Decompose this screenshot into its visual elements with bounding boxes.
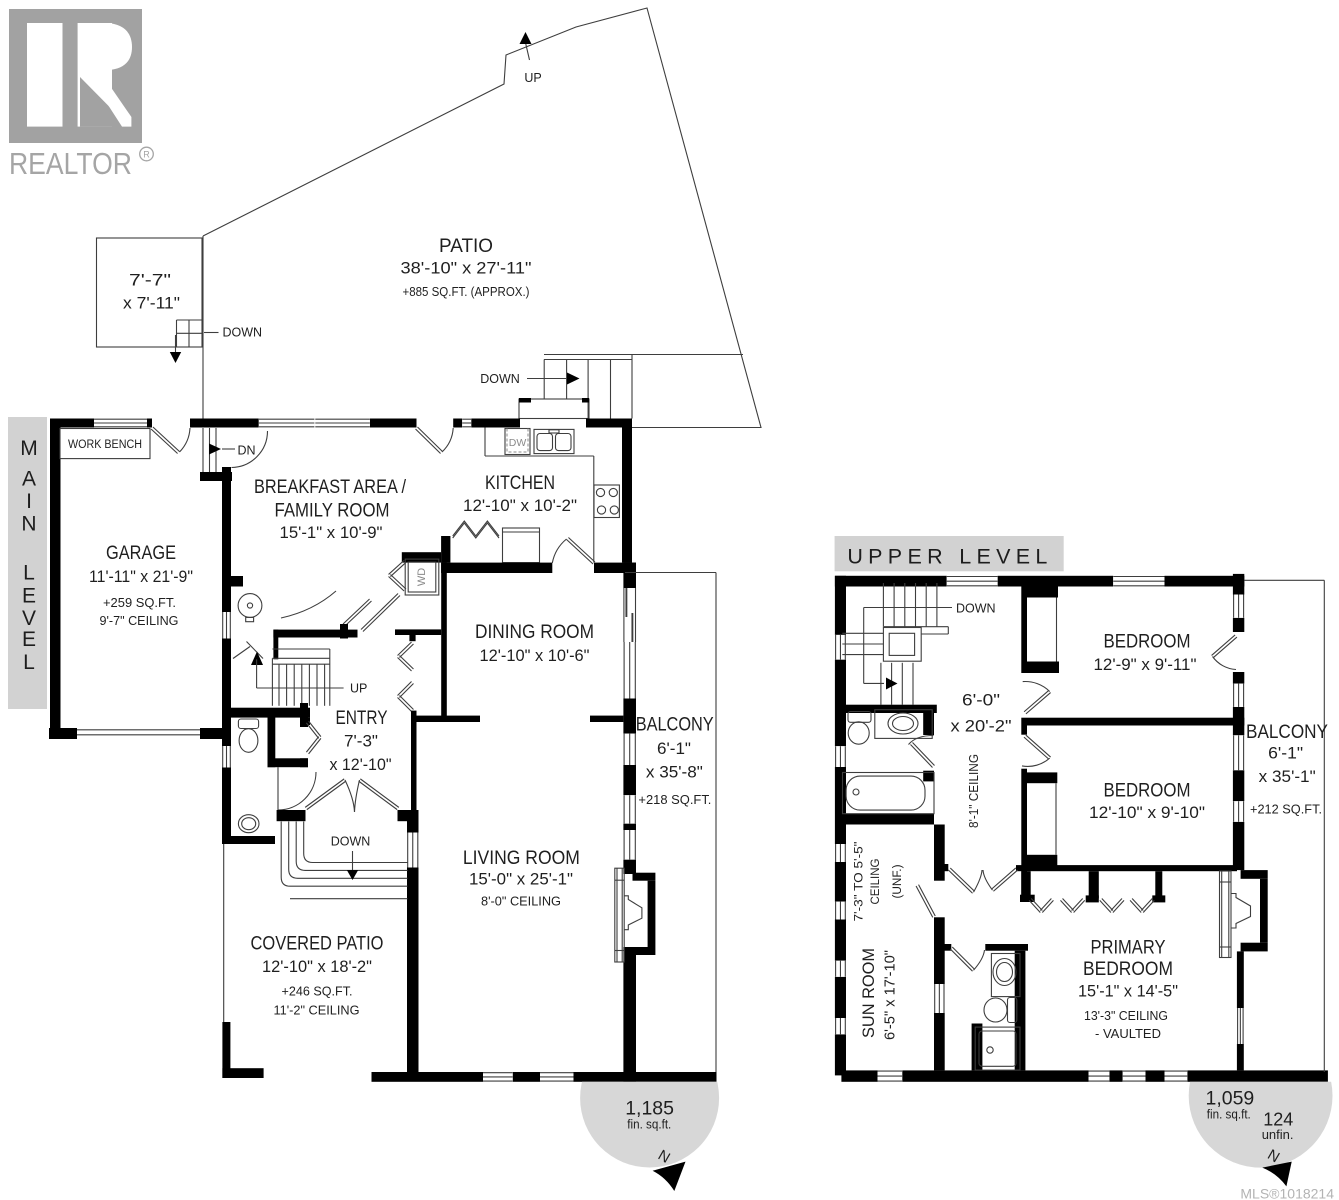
svg-text:SUN ROOM: SUN ROOM bbox=[859, 948, 878, 1038]
svg-text:MLS®1018214: MLS®1018214 bbox=[1240, 1186, 1334, 1200]
svg-text:COVERED PATIO: COVERED PATIO bbox=[251, 934, 384, 955]
svg-text:12'-9" x 9'-11": 12'-9" x 9'-11" bbox=[1094, 656, 1197, 674]
svg-text:15'-1" x 14'-5": 15'-1" x 14'-5" bbox=[1078, 983, 1178, 1001]
svg-text:6'-1": 6'-1" bbox=[657, 740, 691, 758]
svg-text:- VAULTED: - VAULTED bbox=[1095, 1027, 1161, 1041]
svg-text:PATIO: PATIO bbox=[439, 236, 493, 257]
svg-text:L: L bbox=[23, 562, 35, 585]
svg-text:x 35'-1": x 35'-1" bbox=[1259, 768, 1316, 786]
svg-text:7'-7": 7'-7" bbox=[129, 272, 171, 290]
svg-text:(UNF.): (UNF.) bbox=[892, 864, 904, 898]
svg-text:+259 SQ.FT.: +259 SQ.FT. bbox=[103, 596, 176, 610]
svg-text:R: R bbox=[143, 150, 150, 160]
svg-text:CEILING: CEILING bbox=[870, 858, 882, 904]
svg-text:DN: DN bbox=[238, 444, 256, 458]
svg-text:REALTOR: REALTOR bbox=[9, 147, 132, 181]
svg-text:fin. sq.ft.: fin. sq.ft. bbox=[627, 1117, 671, 1132]
svg-text:UP: UP bbox=[350, 682, 367, 696]
svg-text:BEDROOM: BEDROOM bbox=[1104, 781, 1191, 802]
svg-text:A: A bbox=[22, 467, 36, 490]
svg-text:11'-2" CEILING: 11'-2" CEILING bbox=[274, 1004, 360, 1018]
svg-text:E: E bbox=[22, 584, 36, 607]
svg-text:BALCONY: BALCONY bbox=[1246, 722, 1328, 743]
svg-text:12'-10" x 9'-10": 12'-10" x 9'-10" bbox=[1089, 804, 1205, 822]
svg-text:FAMILY ROOM: FAMILY ROOM bbox=[275, 501, 390, 522]
svg-text:DOWN: DOWN bbox=[331, 835, 371, 849]
svg-text:DOWN: DOWN bbox=[956, 602, 996, 616]
svg-text:+218 SQ.FT.: +218 SQ.FT. bbox=[638, 793, 711, 807]
svg-text:N: N bbox=[21, 513, 36, 536]
svg-text:M: M bbox=[20, 437, 38, 460]
svg-text:8'-1" CEILING: 8'-1" CEILING bbox=[966, 754, 981, 828]
svg-text:6'-0": 6'-0" bbox=[962, 692, 1000, 710]
svg-text:BEDROOM: BEDROOM bbox=[1104, 632, 1191, 653]
svg-text:L: L bbox=[23, 651, 35, 674]
svg-text:BALCONY: BALCONY bbox=[636, 715, 714, 736]
svg-text:11'-11" x 21'-9": 11'-11" x 21'-9" bbox=[89, 568, 193, 586]
svg-text:15'-0" x 25'-1": 15'-0" x 25'-1" bbox=[469, 871, 573, 889]
svg-text:x 20'-2": x 20'-2" bbox=[951, 718, 1012, 736]
svg-text:UP: UP bbox=[524, 71, 541, 85]
svg-text:6'-1": 6'-1" bbox=[1268, 745, 1303, 763]
svg-text:PRIMARY: PRIMARY bbox=[1091, 938, 1166, 959]
svg-text:+885 SQ.FT. (APPROX.): +885 SQ.FT. (APPROX.) bbox=[403, 285, 530, 299]
svg-text:E: E bbox=[22, 628, 36, 651]
svg-text:x 35'-8": x 35'-8" bbox=[646, 764, 703, 782]
svg-text:WORK BENCH: WORK BENCH bbox=[68, 439, 142, 451]
svg-text:DOWN: DOWN bbox=[480, 372, 520, 386]
svg-text:15'-1" x 10'-9": 15'-1" x 10'-9" bbox=[280, 524, 383, 542]
svg-text:9'-7" CEILING: 9'-7" CEILING bbox=[100, 614, 179, 628]
svg-text:DOWN: DOWN bbox=[223, 326, 263, 340]
svg-text:DW: DW bbox=[509, 437, 527, 449]
svg-text:7'-3": 7'-3" bbox=[344, 733, 378, 751]
svg-text:ENTRY: ENTRY bbox=[336, 708, 388, 729]
svg-text:x 7'-11": x 7'-11" bbox=[123, 295, 180, 313]
svg-text:unfin.: unfin. bbox=[1262, 1127, 1294, 1142]
svg-text:x 12'-10": x 12'-10" bbox=[330, 756, 392, 774]
svg-text:+212 SQ.FT.: +212 SQ.FT. bbox=[1250, 803, 1322, 817]
svg-text:LIVING ROOM: LIVING ROOM bbox=[463, 848, 580, 869]
svg-text:12'-10" x 10'-6": 12'-10" x 10'-6" bbox=[480, 647, 590, 665]
svg-text:38'-10" x 27'-11": 38'-10" x 27'-11" bbox=[401, 260, 532, 278]
svg-text:BREAKFAST AREA /: BREAKFAST AREA / bbox=[254, 477, 407, 498]
svg-text:WD: WD bbox=[416, 568, 428, 586]
svg-text:V: V bbox=[22, 607, 36, 630]
svg-text:8'-0" CEILING: 8'-0" CEILING bbox=[481, 895, 561, 909]
svg-text:DINING ROOM: DINING ROOM bbox=[475, 622, 594, 643]
svg-text:fin. sq.ft.: fin. sq.ft. bbox=[1207, 1106, 1251, 1121]
svg-text:12'-10" x 10'-2": 12'-10" x 10'-2" bbox=[463, 497, 577, 515]
svg-text:I: I bbox=[26, 490, 32, 513]
svg-text:GARAGE: GARAGE bbox=[106, 543, 176, 564]
svg-text:UPPER LEVEL: UPPER LEVEL bbox=[847, 545, 1052, 569]
svg-text:12'-10" x 18'-2": 12'-10" x 18'-2" bbox=[262, 958, 372, 976]
svg-text:7'-3" TO 5'-5": 7'-3" TO 5'-5" bbox=[854, 842, 866, 922]
svg-text:+246 SQ.FT.: +246 SQ.FT. bbox=[282, 985, 353, 999]
svg-text:KITCHEN: KITCHEN bbox=[485, 473, 555, 494]
svg-text:6'-5" x 17'-10": 6'-5" x 17'-10" bbox=[882, 950, 899, 1040]
svg-text:13'-3" CEILING: 13'-3" CEILING bbox=[1084, 1009, 1168, 1023]
svg-text:BEDROOM: BEDROOM bbox=[1083, 959, 1173, 980]
